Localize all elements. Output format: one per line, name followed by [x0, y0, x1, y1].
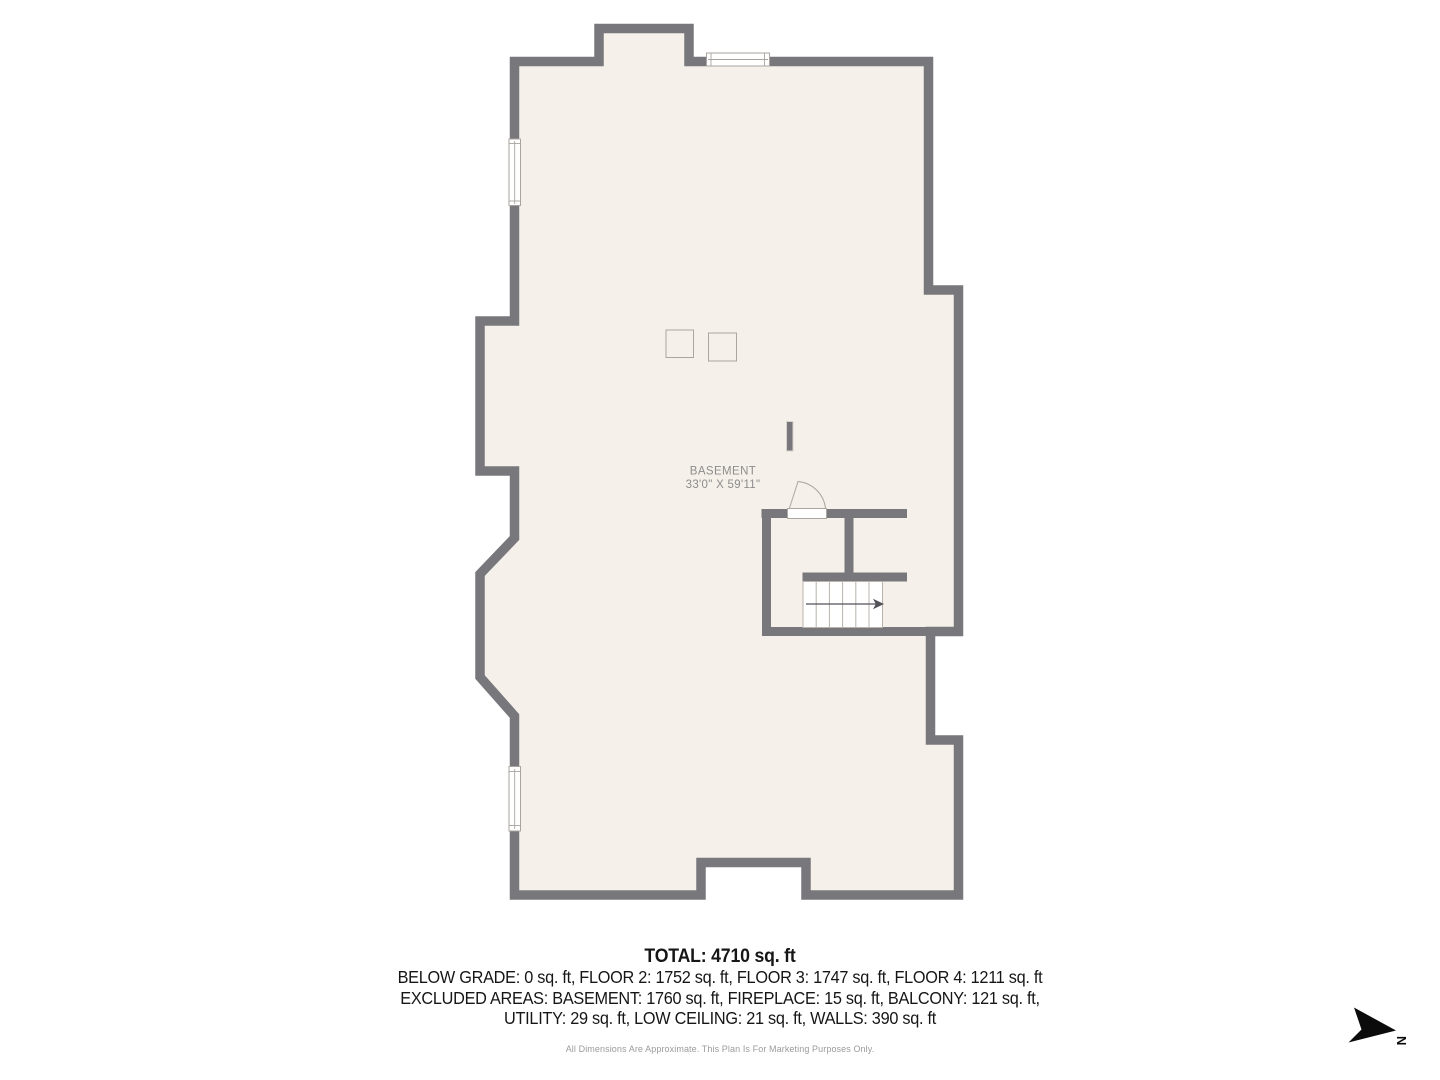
total-area-text: TOTAL: 4710 sq. ft	[50, 946, 1389, 967]
area-breakdown-line-3: UTILITY: 29 sq. ft, LOW CEILING: 21 sq. …	[50, 1008, 1389, 1029]
window-top	[707, 53, 770, 66]
wall-stub	[787, 422, 794, 452]
disclaimer-text: All Dimensions Are Approximate. This Pla…	[0, 1044, 1440, 1054]
column-post-1	[666, 330, 694, 358]
room-dimensions-label: 33'0" X 59'11"	[686, 479, 761, 491]
floor-plan-drawing: BASEMENT 33'0" X 59'11" N	[0, 0, 1440, 1080]
area-summary: TOTAL: 4710 sq. ft BELOW GRADE: 0 sq. ft…	[50, 946, 1389, 1029]
area-breakdown-line-1: BELOW GRADE: 0 sq. ft, FLOOR 2: 1752 sq.…	[50, 967, 1389, 988]
floor-plan-page: BASEMENT 33'0" X 59'11" N TOTAL: 4710 sq…	[0, 0, 1440, 1080]
exterior-walls	[480, 29, 959, 896]
area-breakdown-line-2: EXCLUDED AREAS: BASEMENT: 1760 sq. ft, F…	[50, 988, 1389, 1009]
column-post-2	[709, 333, 737, 361]
window-left-upper	[509, 139, 521, 206]
room-label: BASEMENT	[690, 466, 756, 478]
staircase	[803, 582, 884, 628]
window-left-lower	[509, 767, 521, 832]
